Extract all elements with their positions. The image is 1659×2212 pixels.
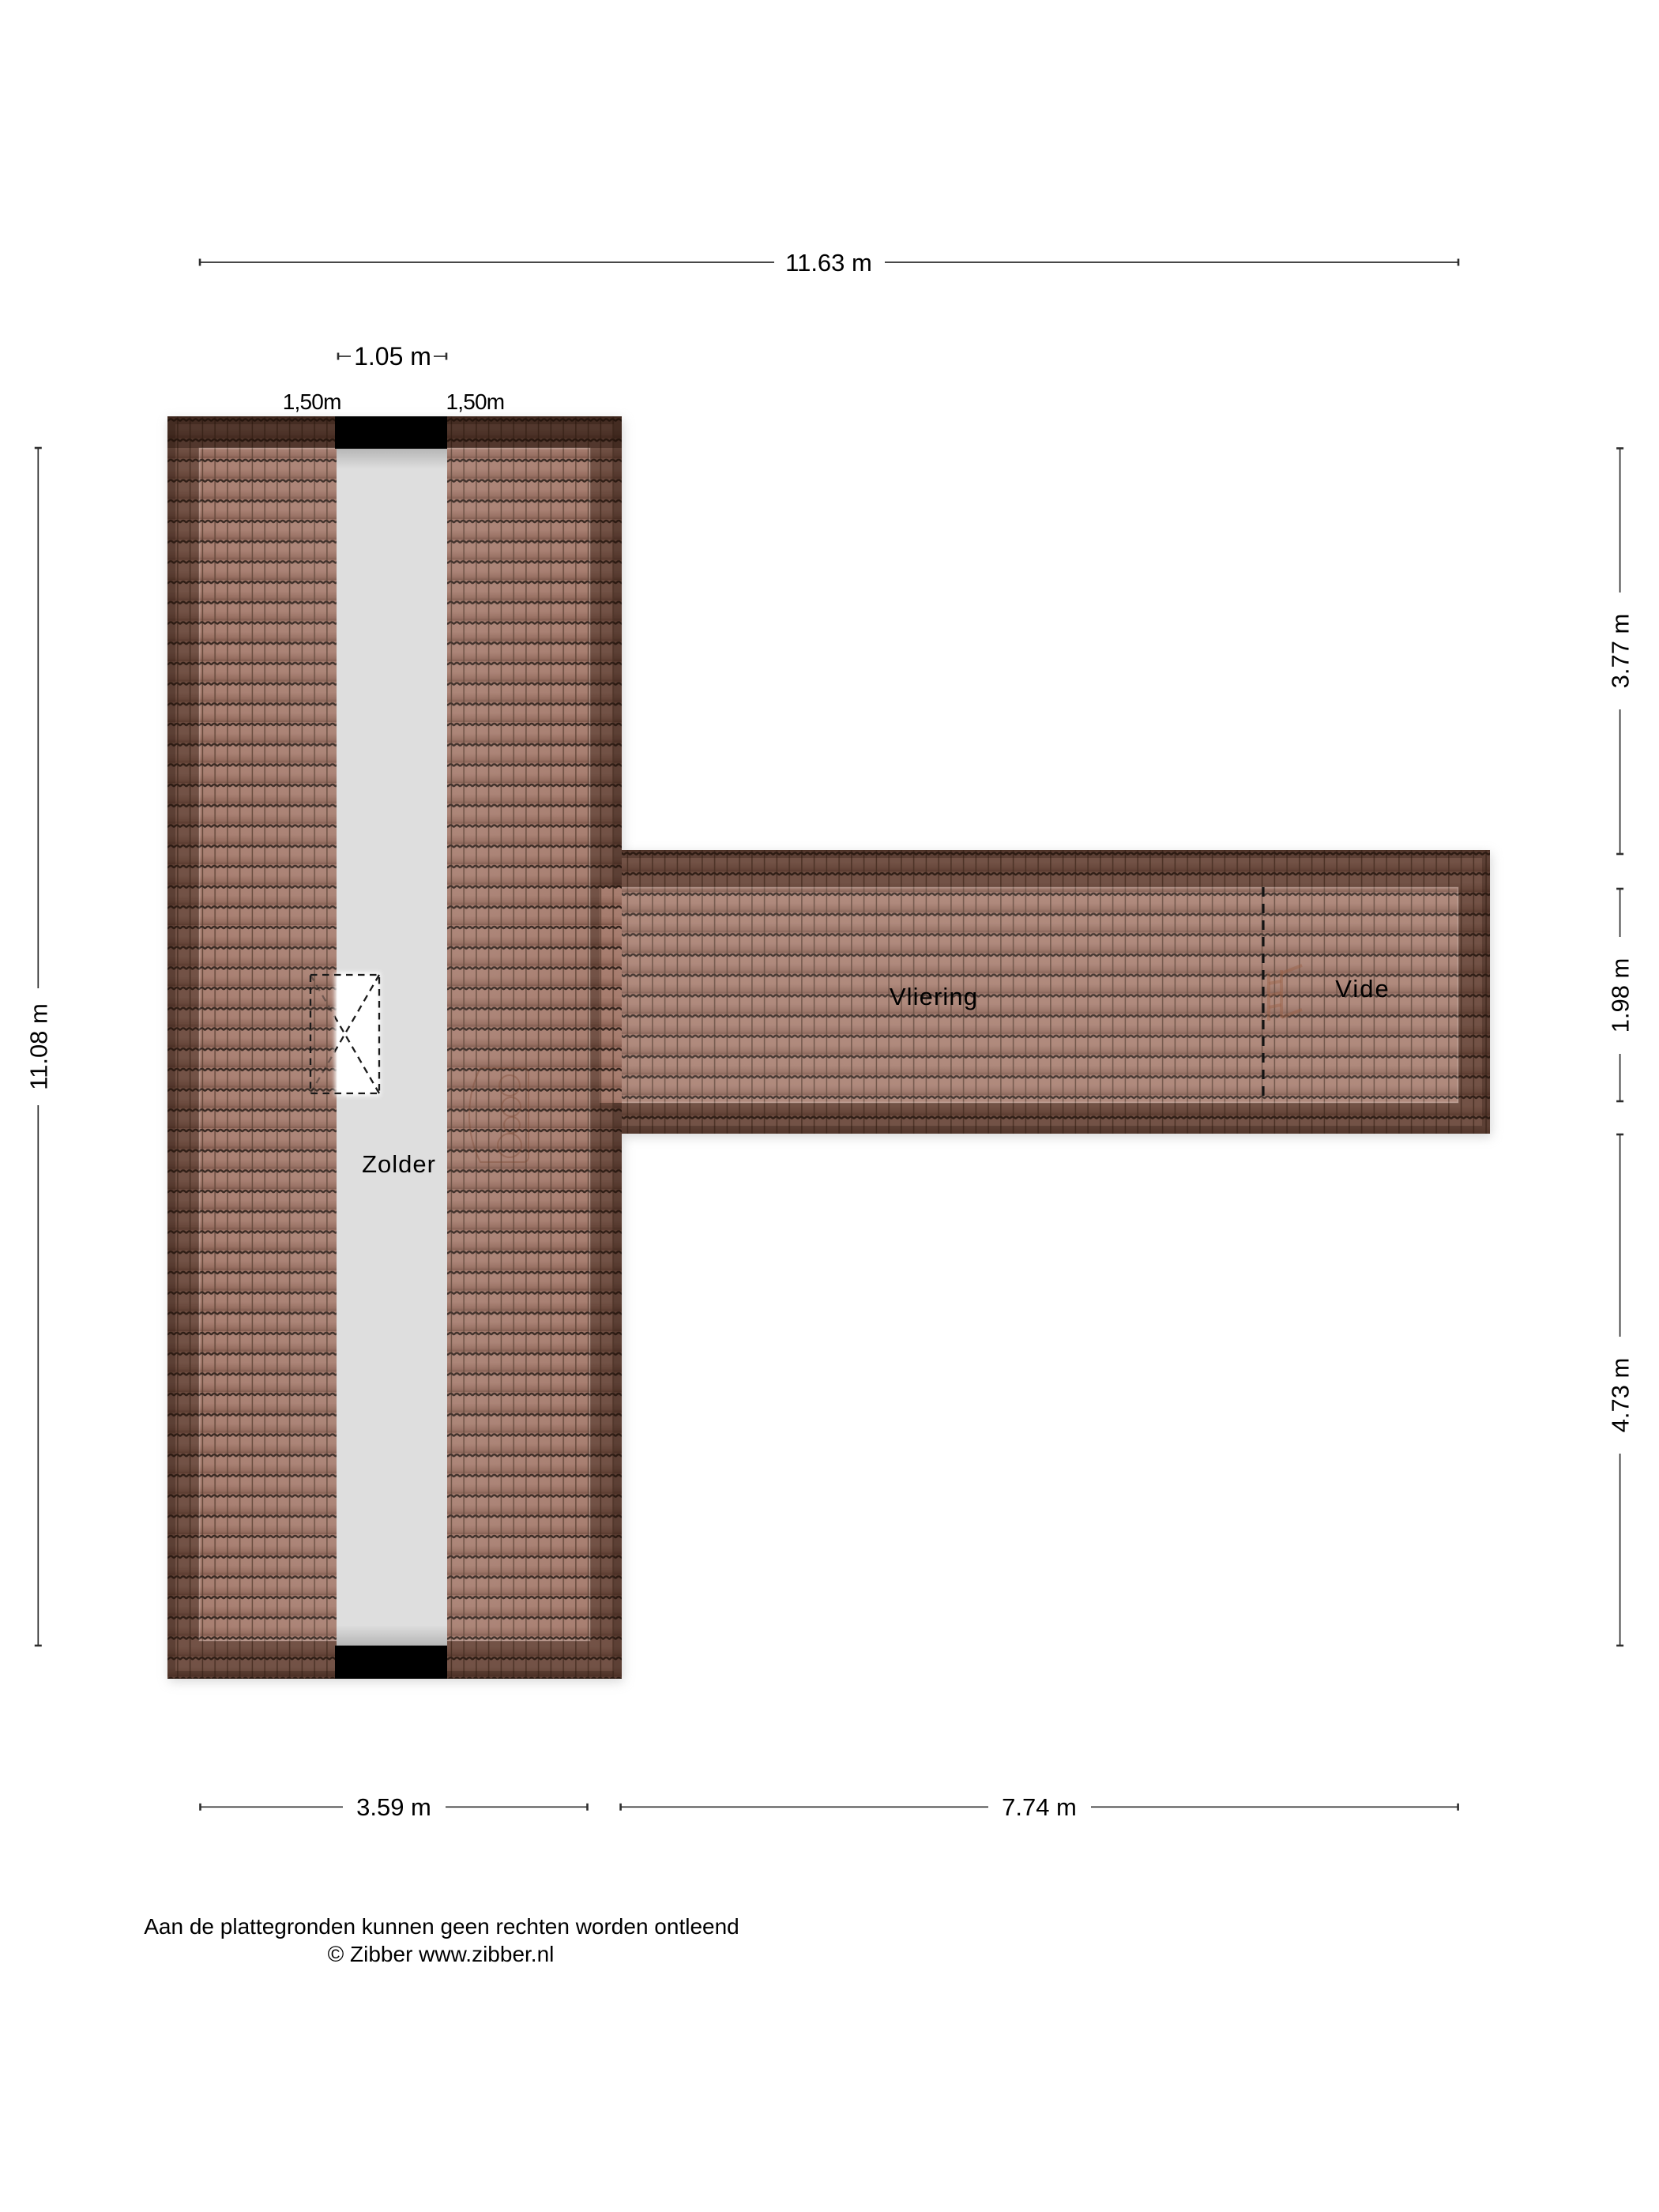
svg-text:1,50m: 1,50m: [446, 389, 504, 414]
svg-text:1.98 m: 1.98 m: [1607, 958, 1635, 1033]
svg-text:Zolder: Zolder: [362, 1150, 436, 1178]
svg-text:© Zibber www.zibber.nl: © Zibber www.zibber.nl: [328, 1942, 555, 1966]
svg-text:Vliering: Vliering: [890, 983, 978, 1010]
svg-text:3.59 m: 3.59 m: [356, 1793, 431, 1821]
svg-text:7.74 m: 7.74 m: [1002, 1793, 1077, 1821]
svg-text:4.73 m: 4.73 m: [1607, 1358, 1635, 1433]
svg-text:1,50m: 1,50m: [283, 389, 341, 414]
svg-text:Aan de plattegronden kunnen ge: Aan de plattegronden kunnen geen rechten…: [144, 1914, 739, 1939]
svg-text:3.77 m: 3.77 m: [1607, 614, 1635, 689]
svg-text:Vide: Vide: [1335, 975, 1390, 1003]
svg-text:11.08 m: 11.08 m: [24, 1003, 52, 1090]
svg-text:11.63 m: 11.63 m: [785, 249, 872, 276]
svg-text:1.05 m: 1.05 m: [354, 342, 431, 371]
